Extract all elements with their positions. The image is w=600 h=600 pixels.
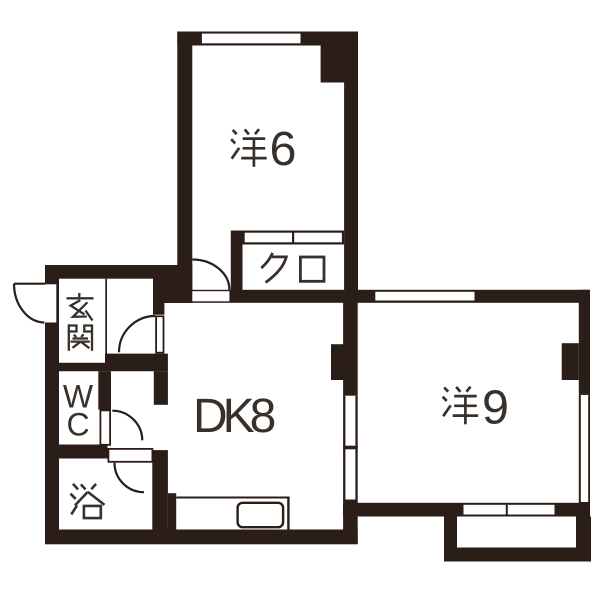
svg-text:6: 6 xyxy=(270,122,297,176)
svg-text:DK8: DK8 xyxy=(193,390,275,443)
svg-text:9: 9 xyxy=(482,381,509,435)
svg-text:C: C xyxy=(66,407,89,443)
